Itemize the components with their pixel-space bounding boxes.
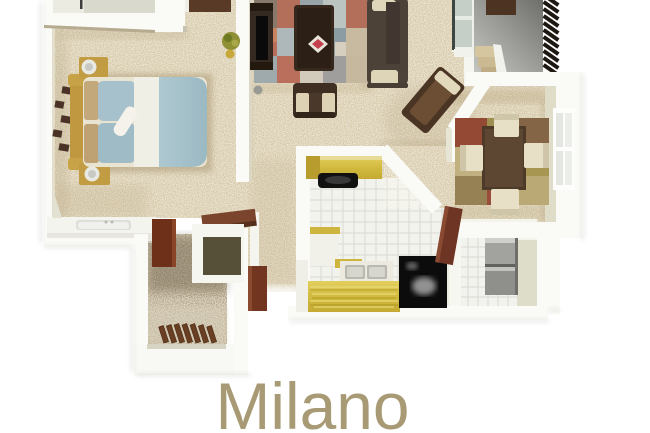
svg-text:Milano: Milano bbox=[216, 369, 410, 433]
